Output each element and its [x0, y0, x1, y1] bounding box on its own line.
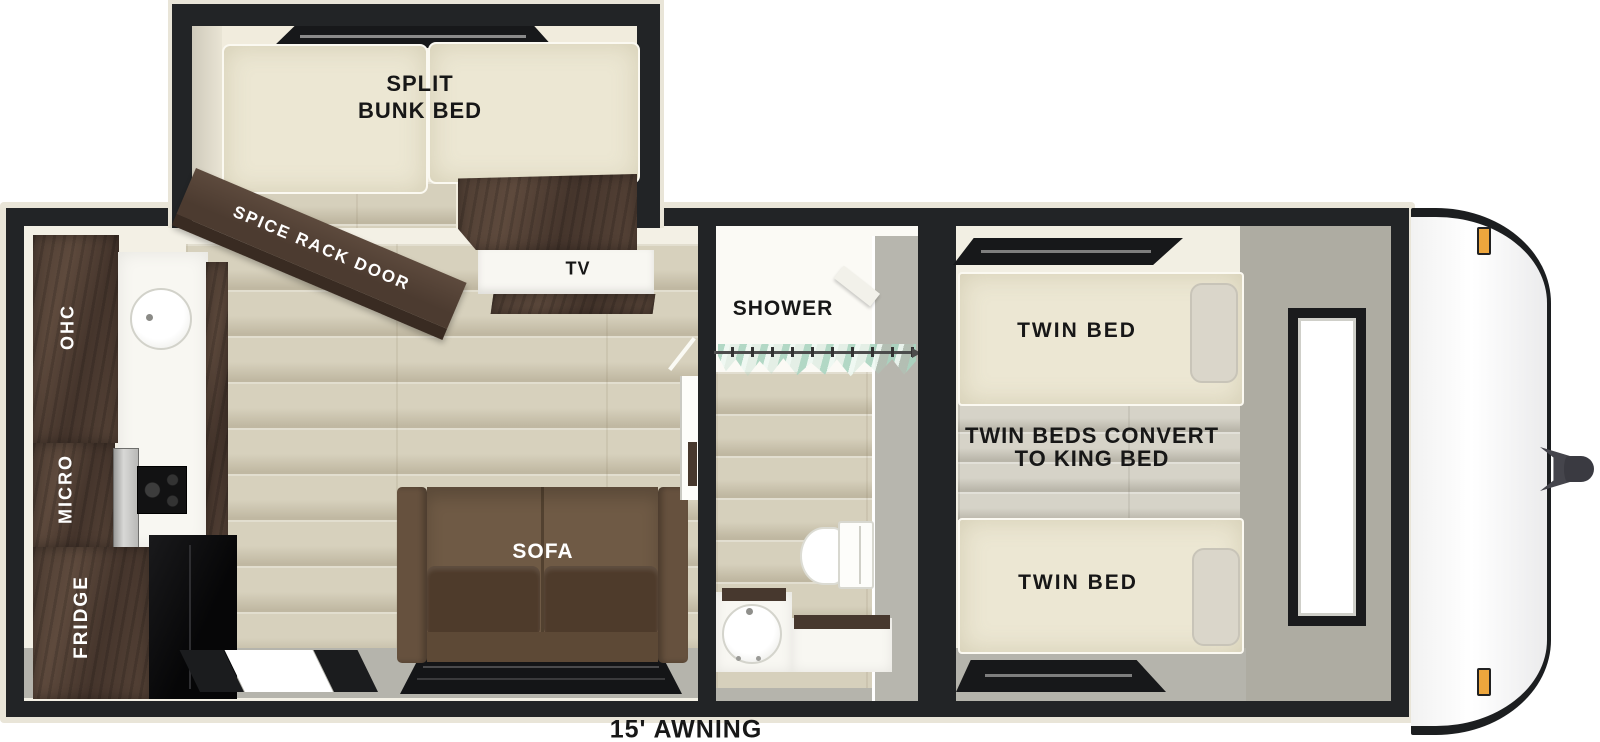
kitchen-lower-cabinets	[206, 262, 228, 552]
sofa-arm-left	[397, 487, 427, 663]
split-bunk-bed-label-line1: SPLIT	[386, 71, 453, 96]
front-cap	[1411, 208, 1551, 735]
vanity-backsplash	[722, 588, 786, 601]
sofa-cushion-left	[427, 566, 540, 636]
bathroom-left-wall	[698, 226, 716, 701]
sofa-label: SOFA	[512, 540, 573, 564]
awning-label: 15' AWNING	[610, 716, 763, 742]
sofa-rug-stripe2	[417, 678, 665, 680]
bedroom-left-wall	[918, 226, 956, 701]
twin-beds-convert-label: TWIN BEDS CONVERT TO KING BED	[965, 424, 1219, 470]
tv-shelf-base	[491, 294, 656, 314]
twin-beds-convert-line1: TWIN BEDS CONVERT	[965, 423, 1219, 448]
shower-label: SHOWER	[733, 297, 834, 321]
bathroom-faucet-handle-right	[756, 656, 761, 661]
vanity-extension-backsplash	[794, 615, 890, 629]
kitchen-sink	[130, 288, 192, 350]
ohc-label: OHC	[58, 304, 79, 350]
micro-label: MICRO	[56, 454, 77, 524]
twin-bed-bottom-pillow	[1192, 548, 1240, 646]
bathroom-floor-bottom	[716, 688, 874, 701]
kitchen-faucet	[146, 314, 153, 321]
twin-bed-top-label: TWIN BED	[1017, 319, 1137, 343]
bathroom-door-handle	[688, 442, 697, 486]
split-bunk-bed-label: SPLIT BUNK BED	[358, 70, 482, 124]
toilet-tank	[838, 521, 874, 589]
sofa-cushion-right	[544, 566, 658, 636]
bedroom-roof-vent-top	[953, 238, 1183, 265]
floorplan-stage: SPLIT BUNK BED OHC MICRO FRIDGE TV SPICE…	[0, 0, 1600, 742]
twin-beds-convert-line2: TO KING BED	[1015, 446, 1170, 471]
sofa-rug-stripe	[423, 666, 660, 668]
bedroom-roof-vent-bottom	[956, 660, 1166, 692]
tv-label: TV	[565, 259, 590, 280]
twin-bed-bottom-label: TWIN BED	[1018, 571, 1138, 595]
toilet-tank-seam	[859, 526, 861, 584]
fridge-label: FRIDGE	[71, 575, 93, 659]
twin-bed-top-pillow	[1190, 283, 1238, 383]
clearance-light-top	[1477, 227, 1491, 255]
range-oven	[113, 448, 139, 548]
sofa-arm-right	[658, 487, 688, 663]
bunk-roof-vent-slot	[300, 35, 526, 38]
hitch-arm	[1564, 456, 1594, 482]
bathroom-faucet	[746, 608, 753, 615]
bedroom-roof-vent-bottom-slot	[985, 674, 1132, 677]
bedroom-roof-vent-top-slot	[981, 250, 1151, 253]
bedroom-window	[1288, 308, 1366, 626]
sofa-skirt	[427, 632, 658, 662]
split-bunk-bed-label-line2: BUNK BED	[358, 98, 482, 123]
cooktop	[137, 466, 187, 514]
tv-overhead-cabinet	[458, 174, 637, 250]
bathroom-faucet-handle-left	[736, 656, 741, 661]
shower-rod-hooks	[714, 347, 916, 357]
clearance-light-bottom	[1477, 668, 1491, 696]
